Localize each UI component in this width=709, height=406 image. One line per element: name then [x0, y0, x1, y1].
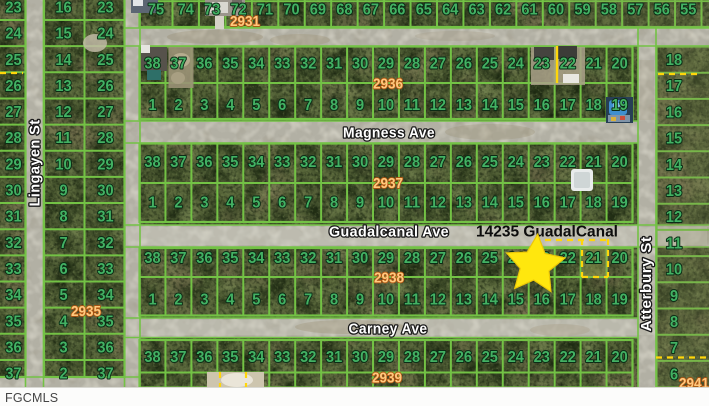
svg-text:33: 33	[274, 56, 291, 73]
svg-text:16: 16	[534, 97, 551, 114]
svg-text:8: 8	[670, 314, 678, 331]
svg-text:2931: 2931	[230, 13, 260, 30]
svg-text:73: 73	[204, 2, 221, 19]
svg-text:4: 4	[226, 195, 234, 212]
svg-text:9: 9	[356, 195, 364, 212]
svg-text:29: 29	[5, 156, 22, 173]
svg-text:23: 23	[97, 0, 114, 17]
svg-text:24: 24	[508, 349, 525, 366]
svg-text:38: 38	[144, 349, 161, 366]
svg-text:8: 8	[59, 209, 67, 226]
svg-text:3: 3	[59, 339, 67, 356]
svg-text:33: 33	[97, 261, 114, 278]
svg-text:36: 36	[196, 154, 213, 171]
svg-text:36: 36	[196, 250, 213, 267]
svg-text:18: 18	[586, 97, 603, 114]
svg-text:18: 18	[586, 292, 603, 309]
svg-text:65: 65	[416, 2, 433, 19]
svg-text:14235 GuadalCanal: 14235 GuadalCanal	[476, 224, 618, 241]
svg-text:35: 35	[5, 313, 22, 330]
svg-text:13: 13	[666, 183, 683, 200]
svg-text:26: 26	[456, 349, 473, 366]
svg-text:31: 31	[97, 209, 114, 226]
svg-text:31: 31	[5, 209, 22, 226]
svg-text:19: 19	[612, 97, 629, 114]
svg-text:11: 11	[404, 97, 421, 114]
svg-text:36: 36	[97, 339, 114, 356]
svg-text:30: 30	[352, 56, 368, 73]
svg-text:28: 28	[97, 130, 114, 147]
svg-text:28: 28	[404, 349, 421, 366]
svg-text:2: 2	[174, 292, 182, 309]
svg-text:67: 67	[363, 2, 379, 19]
svg-text:32: 32	[300, 349, 316, 366]
svg-text:35: 35	[222, 250, 239, 267]
svg-text:26: 26	[456, 56, 473, 73]
svg-text:59: 59	[574, 2, 591, 19]
svg-text:7: 7	[59, 235, 67, 252]
svg-text:38: 38	[144, 154, 161, 171]
svg-text:6: 6	[278, 195, 286, 212]
svg-text:17: 17	[560, 292, 576, 309]
svg-text:12: 12	[666, 209, 682, 226]
svg-text:30: 30	[97, 183, 113, 200]
svg-text:6: 6	[278, 292, 286, 309]
svg-text:Carney Ave: Carney Ave	[349, 322, 428, 338]
svg-text:21: 21	[586, 250, 603, 267]
svg-text:32: 32	[300, 56, 316, 73]
svg-text:3: 3	[200, 195, 208, 212]
svg-text:33: 33	[274, 349, 291, 366]
svg-text:16: 16	[55, 0, 72, 17]
svg-text:34: 34	[248, 250, 265, 267]
svg-text:69: 69	[310, 2, 327, 19]
svg-text:7: 7	[304, 97, 312, 114]
svg-text:58: 58	[601, 2, 618, 19]
svg-text:2: 2	[174, 195, 182, 212]
svg-text:9: 9	[356, 292, 364, 309]
svg-text:7: 7	[304, 195, 312, 212]
svg-text:22: 22	[560, 349, 576, 366]
svg-text:8: 8	[330, 97, 338, 114]
svg-text:20: 20	[612, 250, 628, 267]
svg-text:33: 33	[5, 261, 22, 278]
svg-text:35: 35	[222, 56, 239, 73]
svg-text:37: 37	[170, 349, 186, 366]
svg-text:37: 37	[97, 366, 113, 383]
svg-text:28: 28	[404, 56, 421, 73]
svg-text:2: 2	[174, 97, 182, 114]
svg-text:21: 21	[586, 349, 603, 366]
svg-text:5: 5	[59, 287, 67, 304]
svg-text:12: 12	[430, 97, 446, 114]
svg-text:28: 28	[404, 154, 421, 171]
svg-text:35: 35	[222, 154, 239, 171]
svg-text:29: 29	[97, 156, 114, 173]
svg-text:38: 38	[144, 56, 161, 73]
svg-text:33: 33	[274, 154, 291, 171]
svg-text:16: 16	[534, 292, 551, 309]
svg-text:37: 37	[170, 154, 186, 171]
svg-text:57: 57	[627, 2, 643, 19]
svg-text:9: 9	[670, 288, 678, 305]
svg-text:60: 60	[548, 2, 564, 19]
svg-text:28: 28	[5, 130, 22, 147]
svg-text:7: 7	[670, 340, 678, 357]
svg-text:30: 30	[352, 154, 368, 171]
svg-text:20: 20	[612, 154, 628, 171]
svg-text:19: 19	[612, 292, 629, 309]
svg-text:12: 12	[430, 292, 446, 309]
svg-text:Lingayen St: Lingayen St	[28, 120, 44, 207]
svg-text:75: 75	[148, 2, 165, 19]
svg-text:24: 24	[97, 26, 114, 43]
svg-text:4: 4	[226, 97, 234, 114]
svg-text:22: 22	[560, 56, 576, 73]
svg-text:11: 11	[404, 195, 421, 212]
svg-text:29: 29	[378, 349, 395, 366]
svg-text:10: 10	[55, 156, 71, 173]
svg-text:35: 35	[222, 349, 239, 366]
svg-text:27: 27	[430, 56, 446, 73]
svg-text:8: 8	[330, 195, 338, 212]
svg-text:16: 16	[666, 104, 683, 121]
svg-text:32: 32	[97, 235, 113, 252]
svg-text:7: 7	[304, 292, 312, 309]
svg-text:36: 36	[196, 349, 213, 366]
svg-text:30: 30	[5, 183, 21, 200]
svg-text:27: 27	[430, 250, 446, 267]
svg-text:37: 37	[170, 56, 186, 73]
svg-text:21: 21	[586, 154, 603, 171]
svg-text:38: 38	[144, 250, 161, 267]
svg-text:13: 13	[456, 292, 473, 309]
svg-text:31: 31	[326, 154, 343, 171]
svg-text:36: 36	[196, 56, 213, 73]
svg-text:23: 23	[534, 154, 551, 171]
svg-text:36: 36	[5, 339, 22, 356]
svg-text:17: 17	[560, 195, 576, 212]
svg-text:29: 29	[378, 250, 395, 267]
svg-text:4: 4	[59, 313, 67, 330]
svg-text:66: 66	[389, 2, 406, 19]
svg-text:28: 28	[404, 250, 421, 267]
svg-text:11: 11	[666, 235, 683, 252]
svg-text:37: 37	[170, 250, 186, 267]
svg-text:14: 14	[482, 292, 499, 309]
svg-text:Guadalcanal Ave: Guadalcanal Ave	[329, 225, 449, 241]
svg-text:18: 18	[586, 195, 603, 212]
svg-text:25: 25	[482, 349, 499, 366]
svg-text:3: 3	[200, 292, 208, 309]
svg-text:23: 23	[5, 0, 22, 17]
svg-text:13: 13	[456, 195, 473, 212]
svg-text:18: 18	[666, 52, 683, 69]
svg-text:27: 27	[430, 154, 446, 171]
svg-text:6: 6	[59, 261, 67, 278]
svg-text:10: 10	[378, 97, 394, 114]
svg-text:31: 31	[326, 250, 343, 267]
svg-text:10: 10	[666, 262, 682, 279]
svg-text:27: 27	[97, 104, 113, 121]
svg-text:34: 34	[97, 287, 114, 304]
svg-text:2936: 2936	[373, 76, 403, 93]
svg-text:32: 32	[5, 235, 21, 252]
svg-text:25: 25	[5, 52, 22, 69]
svg-text:27: 27	[430, 349, 446, 366]
svg-text:25: 25	[482, 250, 499, 267]
svg-text:1: 1	[148, 97, 156, 114]
svg-text:29: 29	[378, 154, 395, 171]
svg-text:15: 15	[55, 26, 72, 43]
svg-text:34: 34	[248, 349, 265, 366]
svg-text:32: 32	[300, 154, 316, 171]
svg-text:2937: 2937	[373, 175, 403, 192]
svg-text:24: 24	[508, 154, 525, 171]
svg-text:22: 22	[560, 154, 576, 171]
svg-text:5: 5	[252, 97, 260, 114]
svg-text:37: 37	[5, 366, 21, 383]
svg-text:34: 34	[5, 287, 22, 304]
svg-text:5: 5	[252, 292, 260, 309]
svg-text:2938: 2938	[374, 270, 404, 287]
svg-text:5: 5	[252, 195, 260, 212]
svg-text:61: 61	[521, 2, 538, 19]
svg-text:25: 25	[97, 52, 114, 69]
svg-text:15: 15	[666, 131, 683, 148]
svg-text:24: 24	[508, 56, 525, 73]
svg-text:27: 27	[5, 104, 21, 121]
svg-text:20: 20	[612, 349, 628, 366]
svg-text:20: 20	[612, 56, 628, 73]
svg-text:6: 6	[278, 97, 286, 114]
svg-text:31: 31	[326, 56, 343, 73]
svg-text:13: 13	[456, 97, 473, 114]
svg-text:15: 15	[508, 195, 525, 212]
svg-text:33: 33	[274, 250, 291, 267]
svg-text:10: 10	[378, 195, 394, 212]
svg-text:34: 34	[248, 154, 265, 171]
svg-text:30: 30	[352, 250, 368, 267]
svg-text:26: 26	[456, 250, 473, 267]
svg-text:31: 31	[326, 349, 343, 366]
svg-text:23: 23	[534, 56, 551, 73]
svg-text:3: 3	[200, 97, 208, 114]
svg-text:14: 14	[482, 97, 499, 114]
svg-text:10: 10	[378, 292, 394, 309]
svg-text:11: 11	[404, 292, 421, 309]
svg-text:1: 1	[148, 292, 156, 309]
svg-text:17: 17	[666, 78, 682, 95]
svg-text:8: 8	[330, 292, 338, 309]
svg-text:9: 9	[356, 97, 364, 114]
svg-text:6: 6	[670, 366, 678, 383]
svg-text:55: 55	[680, 2, 697, 19]
svg-text:25: 25	[482, 56, 499, 73]
svg-text:15: 15	[508, 97, 525, 114]
svg-text:11: 11	[55, 130, 72, 147]
svg-text:14: 14	[666, 157, 683, 174]
svg-text:63: 63	[469, 2, 486, 19]
svg-text:64: 64	[442, 2, 459, 19]
svg-text:25: 25	[482, 154, 499, 171]
svg-text:17: 17	[560, 97, 576, 114]
svg-text:Atterbury St: Atterbury St	[639, 237, 655, 332]
svg-text:74: 74	[178, 2, 195, 19]
svg-text:29: 29	[378, 56, 395, 73]
svg-text:12: 12	[430, 195, 446, 212]
svg-text:FGCMLS: FGCMLS	[5, 391, 58, 405]
svg-text:Magness Ave: Magness Ave	[343, 126, 435, 142]
svg-text:1: 1	[148, 195, 156, 212]
svg-text:19: 19	[612, 195, 629, 212]
svg-text:15: 15	[508, 292, 525, 309]
svg-text:30: 30	[352, 349, 368, 366]
svg-text:14: 14	[482, 195, 499, 212]
svg-text:70: 70	[283, 2, 299, 19]
svg-text:14: 14	[55, 52, 72, 69]
svg-text:24: 24	[5, 26, 22, 43]
svg-text:9: 9	[59, 183, 67, 200]
svg-text:21: 21	[586, 56, 603, 73]
svg-text:12: 12	[55, 104, 71, 121]
svg-text:34: 34	[248, 56, 265, 73]
svg-text:23: 23	[534, 349, 551, 366]
svg-text:68: 68	[336, 2, 353, 19]
svg-text:56: 56	[654, 2, 671, 19]
svg-text:32: 32	[300, 250, 316, 267]
svg-text:16: 16	[534, 195, 551, 212]
svg-text:2: 2	[59, 366, 67, 383]
svg-text:26: 26	[97, 78, 114, 95]
svg-text:2939: 2939	[372, 370, 402, 387]
svg-text:4: 4	[226, 292, 234, 309]
svg-text:62: 62	[495, 2, 511, 19]
svg-text:26: 26	[456, 154, 473, 171]
svg-text:13: 13	[55, 78, 72, 95]
svg-text:2935: 2935	[71, 303, 101, 320]
svg-text:26: 26	[5, 78, 22, 95]
